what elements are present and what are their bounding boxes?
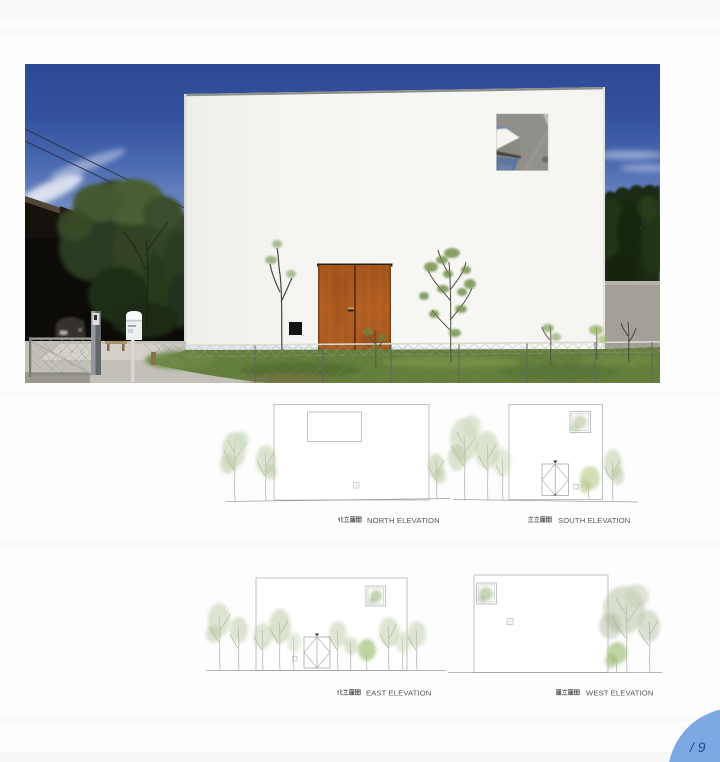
svg-text:SOUTH ELEVATION: SOUTH ELEVATION (558, 516, 630, 525)
svg-text:NORTH ELEVATION: NORTH ELEVATION (367, 516, 440, 525)
svg-text:/ 9: / 9 (689, 739, 706, 755)
svg-text:EAST ELEVATION: EAST ELEVATION (366, 689, 431, 698)
svg-text:WEST ELEVATION: WEST ELEVATION (586, 689, 654, 698)
